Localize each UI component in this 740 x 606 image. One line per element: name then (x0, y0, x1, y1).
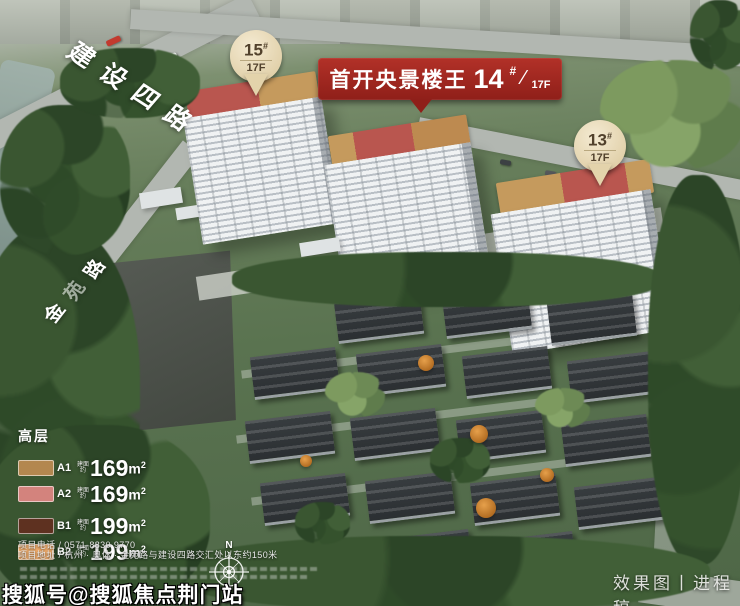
legend-area-prefix: 建面约 (77, 462, 89, 474)
pin-divider (240, 60, 272, 61)
sohu-watermark: 搜狐号@搜狐焦点荆门站 (2, 579, 243, 606)
legend-area-value: 199 (90, 515, 128, 538)
legend-area-unit: m2 (128, 460, 145, 477)
autumn-tree (476, 498, 496, 518)
villa-block (574, 477, 665, 530)
headline-banner: 首开央景楼王 14 # ⁄ 17F (318, 58, 562, 100)
legend-area-unit: m2 (128, 518, 145, 535)
pin-floors: 17F (591, 153, 610, 164)
legend-area-value: 169 (90, 483, 128, 506)
legend-code: A1 (57, 462, 77, 474)
banner-title: 首开央景楼王 (329, 64, 467, 94)
tree-cluster (295, 502, 350, 544)
aerial-render-scene: 建 设 四 路 金 苑 路 首开央景楼王 14 # ⁄ 17F 15# 17F … (0, 0, 740, 606)
pin-tail (244, 74, 268, 96)
villa-block (245, 411, 336, 464)
disclaimer-line (20, 567, 320, 571)
banner-hash: # (510, 64, 517, 78)
autumn-tree (418, 355, 434, 371)
lawn-patch (535, 388, 590, 428)
banner-floors: 17F (532, 79, 551, 91)
villa-block (462, 346, 553, 399)
compass-north-label: N (206, 540, 252, 551)
render-caption: 效果图丨进程稿 (613, 569, 740, 606)
legend-code: B1 (57, 520, 77, 532)
legend-row-a1: A1 建面约 169 m2 (18, 456, 193, 480)
autumn-tree (470, 425, 488, 443)
pin-number: 15# (244, 38, 268, 59)
banner-building-number: 14 (473, 64, 503, 95)
tree-cluster (232, 252, 662, 307)
legend-area-unit: m2 (128, 486, 145, 503)
pin-tail (588, 164, 612, 186)
tower-15-facade (183, 96, 341, 244)
lawn-patch (325, 372, 385, 417)
tree-cluster (430, 438, 490, 483)
pin-divider (584, 150, 616, 151)
legend-area-value: 169 (90, 457, 128, 480)
legend-area-prefix: 建面约 (77, 488, 89, 500)
legend-title: 高层 (18, 426, 193, 446)
legend-swatch (18, 518, 54, 534)
legend-row-a2: A2 建面约 169 m2 (18, 482, 193, 506)
autumn-tree (540, 468, 554, 482)
pin-floors: 17F (247, 63, 266, 74)
tree-cluster (648, 175, 740, 565)
autumn-tree (300, 455, 312, 467)
legend-area-prefix: 建面约 (77, 520, 89, 532)
pin-number: 13# (588, 128, 612, 149)
pin-building-15: 15# 17F (228, 30, 284, 96)
legend-swatch (18, 486, 54, 502)
legend-row-b1: B1 建面约 199 m2 (18, 514, 193, 538)
legend-swatch (18, 460, 54, 476)
legend-code: A2 (57, 488, 77, 500)
pin-building-13: 13# 17F (572, 120, 628, 186)
tree-cluster (690, 0, 740, 70)
banner-slash: ⁄ (522, 67, 525, 90)
tree-cluster (0, 105, 130, 255)
